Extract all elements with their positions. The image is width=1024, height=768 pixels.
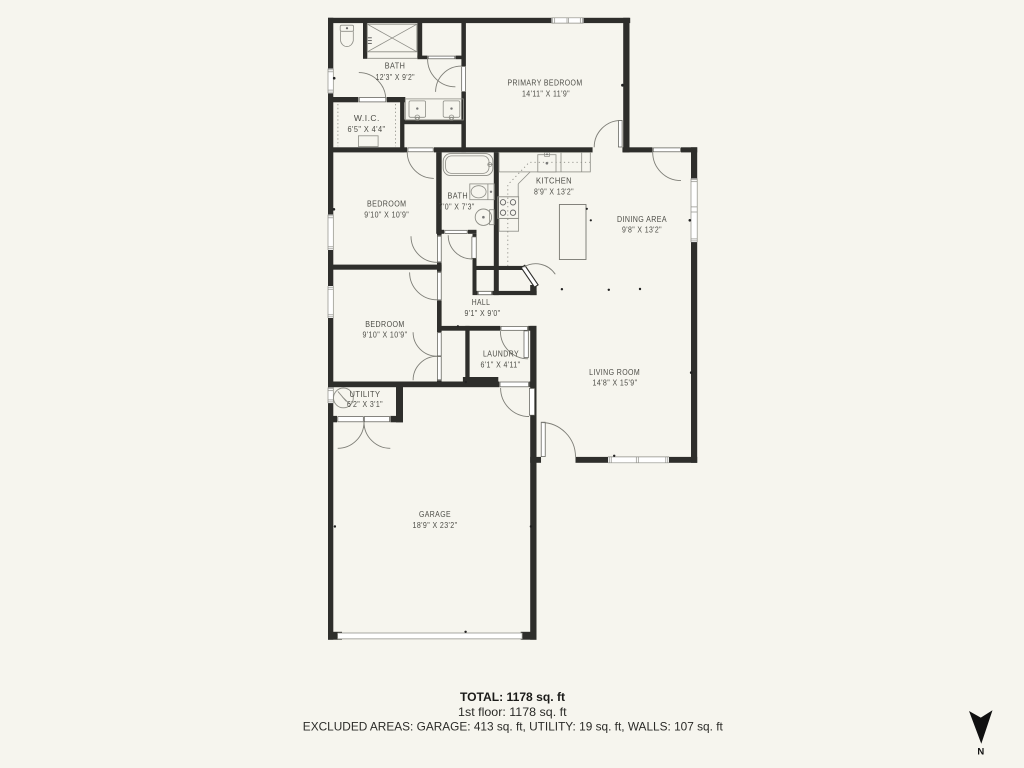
svg-text:6'1" X 4'11": 6'1" X 4'11" — [481, 359, 521, 369]
svg-text:LAUNDRY: LAUNDRY — [483, 348, 519, 358]
svg-text:EXCLUDED AREAS: GARAGE: 413 sq: EXCLUDED AREAS: GARAGE: 413 sq. ft, UTIL… — [303, 720, 724, 734]
svg-text:6'2" X 3'1": 6'2" X 3'1" — [347, 399, 383, 409]
svg-text:KITCHEN: KITCHEN — [536, 176, 572, 186]
svg-text:14'11" X 11'9": 14'11" X 11'9" — [522, 89, 570, 99]
svg-text:9'10" X 10'9": 9'10" X 10'9" — [364, 210, 409, 220]
svg-text:GARAGE: GARAGE — [419, 509, 451, 519]
svg-text:9'8" X 13'2": 9'8" X 13'2" — [622, 225, 662, 235]
svg-text:HALL: HALL — [472, 297, 491, 307]
svg-text:BEDROOM: BEDROOM — [365, 319, 405, 329]
svg-text:LIVING ROOM: LIVING ROOM — [589, 367, 640, 377]
svg-text:TOTAL: 1178 sq. ft: TOTAL: 1178 sq. ft — [460, 690, 565, 704]
svg-text:BEDROOM: BEDROOM — [367, 198, 407, 208]
svg-text:8'9" X 13'2": 8'9" X 13'2" — [534, 186, 574, 196]
svg-text:1st floor: 1178 sq. ft: 1st floor: 1178 sq. ft — [458, 705, 567, 719]
svg-text:9'1" X 9'0": 9'1" X 9'0" — [465, 308, 501, 318]
svg-text:DINING AREA: DINING AREA — [617, 214, 667, 224]
svg-text:18'9" X 23'2": 18'9" X 23'2" — [413, 520, 458, 530]
svg-text:BATH: BATH — [448, 190, 469, 200]
svg-text:6'5" X 4'4": 6'5" X 4'4" — [348, 124, 386, 134]
svg-text:N: N — [977, 746, 984, 757]
svg-text:12'3" X 9'2": 12'3" X 9'2" — [376, 72, 415, 82]
svg-text:14'8" X 15'9": 14'8" X 15'9" — [593, 378, 638, 388]
svg-text:9'10" X 10'9": 9'10" X 10'9" — [363, 330, 408, 340]
svg-text:UTILITY: UTILITY — [350, 389, 381, 399]
svg-text:W.I.C.: W.I.C. — [354, 113, 380, 123]
svg-text:7'0" X 7'3": 7'0" X 7'3" — [439, 201, 475, 211]
svg-text:BATH: BATH — [385, 61, 406, 71]
svg-text:PRIMARY BEDROOM: PRIMARY BEDROOM — [508, 78, 583, 88]
